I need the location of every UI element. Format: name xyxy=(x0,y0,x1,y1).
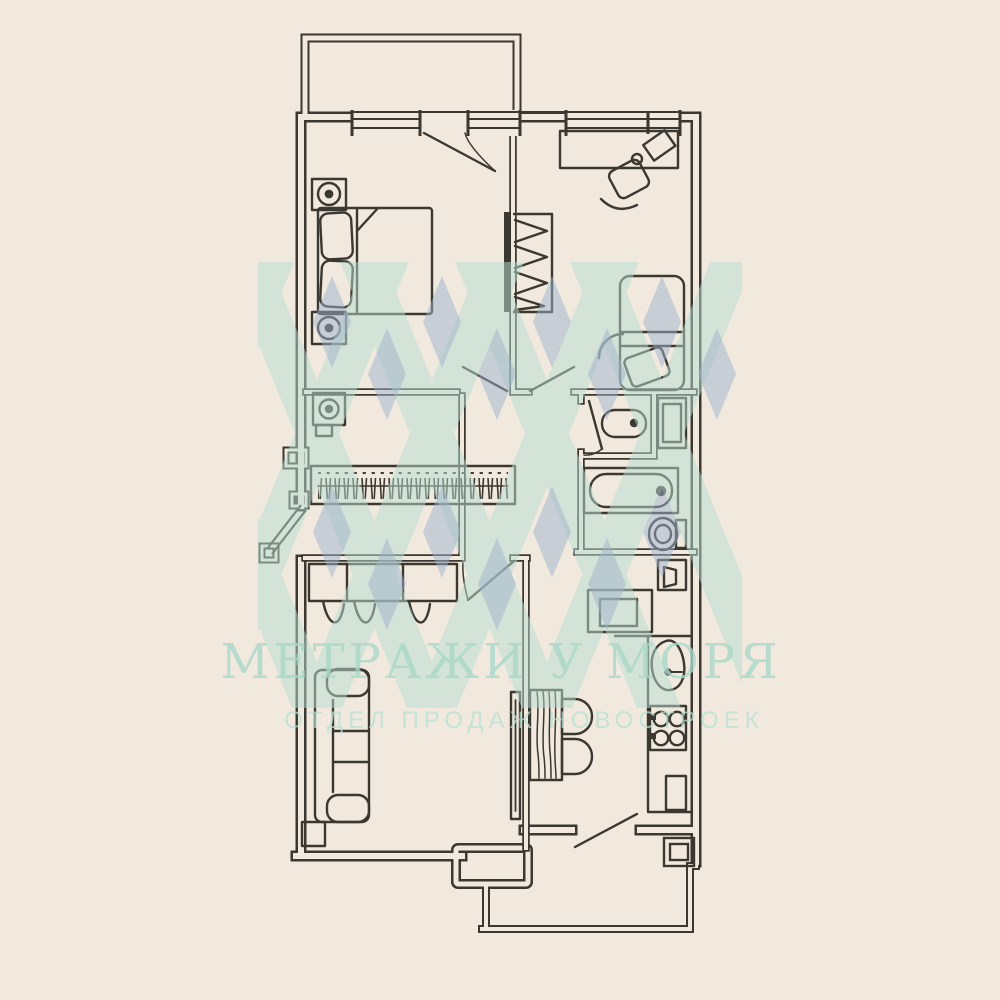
nightstand-lamp xyxy=(312,179,346,210)
floor-plan-drawing: МЕТРАЖИ У МОРЯ ОТДЕЛ ПРОДАЖ НОВОСТРОЕК xyxy=(0,0,1000,1000)
washroom-door-leaf xyxy=(584,401,602,455)
office-chair xyxy=(601,158,651,209)
floor-plan-page: МЕТРАЖИ У МОРЯ ОТДЕЛ ПРОДАЖ НОВОСТРОЕК xyxy=(0,0,1000,1000)
watermark-title: МЕТРАЖИ У МОРЯ xyxy=(220,634,781,690)
watermark-subtitle: ОТДЕЛ ПРОДАЖ НОВОСТРОЕК xyxy=(284,707,763,734)
kitchen-balcony-door-leaf xyxy=(575,814,637,847)
corner-duct xyxy=(664,838,694,866)
chair xyxy=(562,739,592,774)
balcony-door-leaf xyxy=(424,133,495,171)
